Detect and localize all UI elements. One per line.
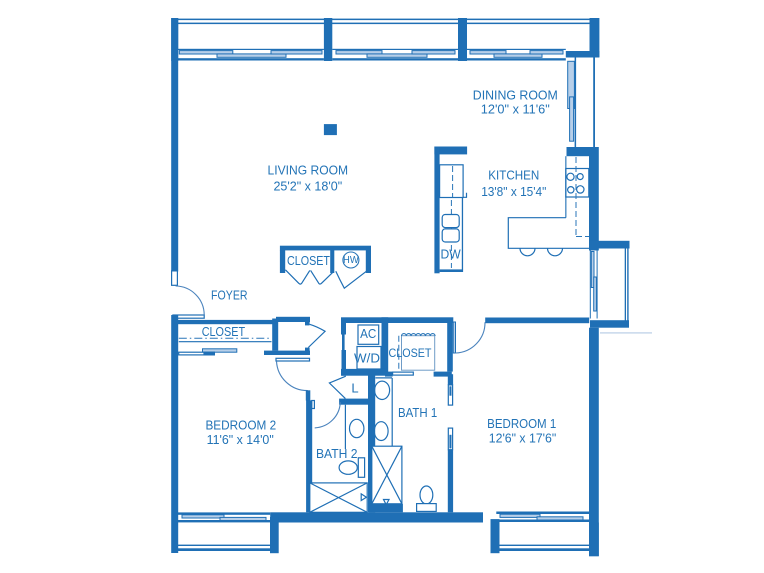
svg-text:BATH 1: BATH 1	[398, 405, 437, 420]
svg-text:FOYER: FOYER	[211, 287, 248, 302]
svg-text:BATH 2: BATH 2	[316, 446, 358, 461]
svg-text:13'8" x 15'4": 13'8" x 15'4"	[481, 184, 547, 199]
svg-text:CLOSET: CLOSET	[389, 346, 432, 360]
svg-text:KITCHEN: KITCHEN	[488, 168, 539, 183]
svg-text:AC: AC	[360, 326, 376, 341]
svg-text:BEDROOM 1: BEDROOM 1	[487, 416, 556, 431]
svg-text:L: L	[351, 381, 358, 396]
svg-text:CLOSET: CLOSET	[202, 324, 245, 339]
svg-text:12'6" x 17'6": 12'6" x 17'6"	[489, 430, 557, 445]
svg-text:W/D: W/D	[354, 350, 380, 365]
svg-text:12'0" x 11'6": 12'0" x 11'6"	[481, 102, 550, 117]
svg-text:BEDROOM 2: BEDROOM 2	[205, 417, 276, 432]
svg-text:25'2" x 18'0": 25'2" x 18'0"	[273, 178, 342, 193]
svg-text:CLOSET: CLOSET	[287, 253, 330, 268]
svg-text:11'6" x 14'0": 11'6" x 14'0"	[207, 432, 274, 447]
svg-text:DW: DW	[441, 247, 462, 262]
svg-text:HW: HW	[343, 254, 359, 266]
svg-text:LIVING ROOM: LIVING ROOM	[268, 163, 349, 178]
svg-text:DINING ROOM: DINING ROOM	[473, 87, 558, 102]
